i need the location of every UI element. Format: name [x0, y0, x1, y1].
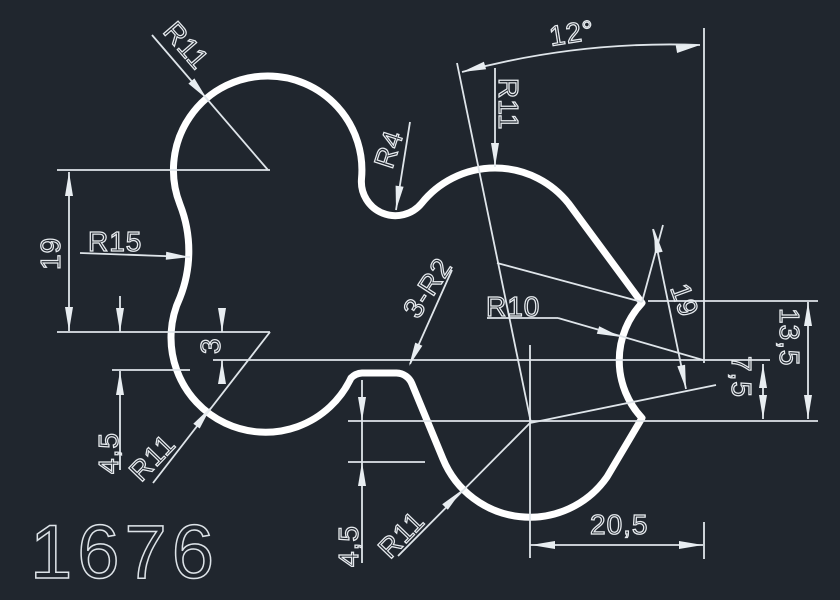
- arrowhead: [491, 143, 499, 167]
- dim-label-r11-bottom-left: R11: [123, 428, 182, 487]
- dim-label-3r2: 3-R2: [397, 252, 458, 323]
- arrowhead: [531, 541, 555, 549]
- arrowhead: [65, 307, 73, 331]
- arrowhead: [597, 326, 621, 337]
- angle-arc-12: [462, 44, 700, 72]
- arrowhead: [116, 371, 124, 395]
- arrowhead: [65, 172, 73, 196]
- arrowhead: [188, 78, 207, 99]
- cad-viewport[interactable]: R11 12° R4 R11 19 R15 3 4,5 R11 3-R2 R10…: [0, 0, 840, 600]
- dim-label-20-5: 20,5: [590, 509, 649, 540]
- arrowhead: [409, 343, 422, 366]
- dim-label-r11-top-left: R11: [157, 16, 215, 76]
- arrowhead: [804, 395, 812, 419]
- dim-label-4-5-left: 4,5: [93, 432, 124, 474]
- arrowhead: [116, 308, 124, 332]
- dim-label-r10: R10: [486, 291, 540, 322]
- arrowhead: [218, 360, 226, 384]
- dim-label-3: 3: [195, 337, 226, 354]
- arrowhead: [442, 490, 462, 510]
- drawing-number: 1676: [30, 510, 219, 595]
- dim-label-r11-top-right: R11: [493, 78, 524, 130]
- arrowhead: [358, 397, 366, 421]
- arrowhead: [218, 308, 226, 332]
- dimension-labels: R11 12° R4 R11 19 R15 3 4,5 R11 3-R2 R10…: [35, 14, 805, 567]
- dim-label-angle-12: 12°: [547, 14, 597, 52]
- drawing-canvas[interactable]: R11 12° R4 R11 19 R15 3 4,5 R11 3-R2 R10…: [0, 0, 840, 600]
- arrowhead: [759, 364, 767, 388]
- dim-label-13-5: 13,5: [774, 308, 805, 367]
- arrowhead: [677, 365, 686, 389]
- arrowhead: [676, 45, 700, 53]
- arrowhead: [462, 62, 486, 72]
- dim-label-r15: R15: [88, 226, 142, 257]
- dim-label-7-5: 7,5: [726, 356, 757, 398]
- dim-label-r11-bottom-right: R11: [372, 505, 431, 564]
- arrowhead: [679, 541, 703, 549]
- arrowhead: [396, 186, 404, 210]
- dim-label-19-left: 19: [35, 237, 66, 270]
- arrowhead: [358, 462, 366, 486]
- dim-label-4-5-bottom: 4,5: [333, 525, 364, 567]
- arrowhead: [759, 395, 767, 419]
